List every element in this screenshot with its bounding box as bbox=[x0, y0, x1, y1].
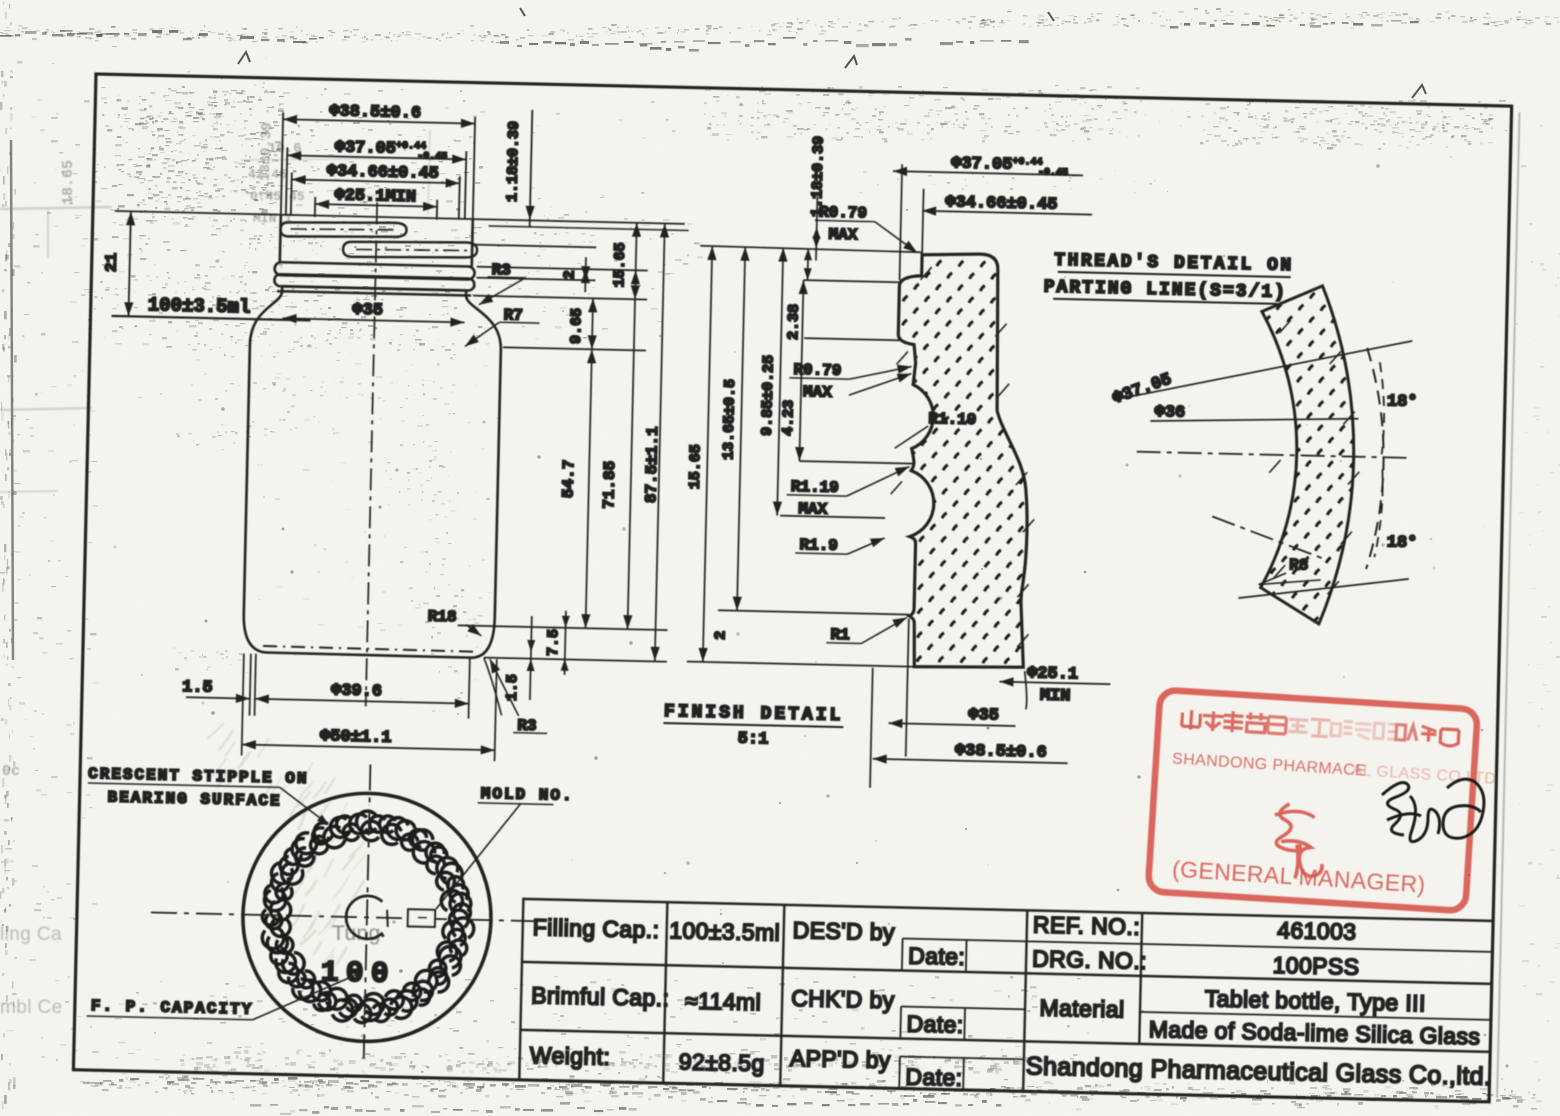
svg-text:9.85±0.25: 9.85±0.25 bbox=[759, 355, 778, 436]
svg-text:54.7: 54.7 bbox=[560, 459, 579, 498]
svg-text:7.5: 7.5 bbox=[545, 629, 563, 656]
svg-text:Date:: Date: bbox=[905, 1064, 963, 1091]
svg-text:100±3.5ml: 100±3.5ml bbox=[669, 917, 780, 946]
svg-text:F. P. CAPACITY: F. P. CAPACITY bbox=[91, 997, 254, 1019]
svg-text:2.38: 2.38 bbox=[785, 304, 803, 340]
svg-text:Φ35: Φ35 bbox=[352, 301, 383, 321]
svg-text:mbl Ce: mbl Ce bbox=[0, 997, 63, 1018]
svg-text:-0.45: -0.45 bbox=[417, 151, 447, 163]
svg-text:Φ35: Φ35 bbox=[968, 706, 999, 726]
svg-text:R18: R18 bbox=[428, 608, 457, 627]
svg-text:R0.79: R0.79 bbox=[819, 203, 867, 222]
svg-text:Φ50±1.1: Φ50±1.1 bbox=[320, 727, 392, 748]
svg-text:92±8.5g: 92±8.5g bbox=[679, 1048, 765, 1076]
svg-text:Date:: Date: bbox=[906, 1011, 964, 1038]
svg-text:R1.19: R1.19 bbox=[791, 478, 839, 497]
svg-text:ling Ca: ling Ca bbox=[0, 924, 62, 945]
svg-text:R1.19: R1.19 bbox=[928, 410, 976, 429]
svg-text:Weight:: Weight: bbox=[530, 1042, 611, 1070]
svg-text:MAX: MAX bbox=[803, 383, 833, 402]
svg-text:1.5: 1.5 bbox=[182, 678, 213, 698]
svg-text:Φ39.6: Φ39.6 bbox=[331, 681, 382, 701]
svg-text:Material: Material bbox=[1039, 995, 1125, 1023]
svg-text:100PSS: 100PSS bbox=[1272, 952, 1359, 980]
svg-text:71.85: 71.85 bbox=[600, 461, 619, 509]
svg-text:4.23: 4.23 bbox=[780, 400, 798, 436]
svg-text:FINISH DETAIL: FINISH DETAIL bbox=[664, 702, 844, 726]
svg-text:MOLD NO.: MOLD NO. bbox=[481, 785, 574, 805]
svg-text:Tung: Tung bbox=[332, 922, 381, 945]
svg-text:REF. NO.:: REF. NO.: bbox=[1033, 911, 1141, 939]
svg-text:1.5: 1.5 bbox=[504, 674, 522, 701]
svg-text:0c: 0c bbox=[2, 763, 20, 780]
svg-text:Φ34.66±0.45: Φ34.66±0.45 bbox=[327, 162, 440, 184]
svg-text:Φ38.5±0.6: Φ38.5±0.6 bbox=[329, 102, 421, 123]
svg-text:MIN: MIN bbox=[1040, 687, 1071, 707]
svg-text:13.65±0.5: 13.65±0.5 bbox=[720, 379, 739, 460]
svg-text:100: 100 bbox=[320, 956, 396, 992]
svg-text:R1.9: R1.9 bbox=[799, 536, 838, 555]
svg-text:MAX: MAX bbox=[798, 500, 828, 519]
svg-text:15.65: 15.65 bbox=[611, 242, 629, 287]
svg-text:R8: R8 bbox=[1289, 556, 1309, 574]
svg-text:Tablet bottle, Type III: Tablet bottle, Type III bbox=[1205, 985, 1427, 1016]
svg-text:1.18±0.39: 1.18±0.39 bbox=[504, 121, 523, 202]
svg-text:18°: 18° bbox=[1387, 392, 1418, 412]
svg-text:Filling Cap.:: Filling Cap.: bbox=[532, 914, 659, 943]
svg-text:15.65: 15.65 bbox=[687, 444, 705, 489]
svg-text:R1: R1 bbox=[830, 626, 850, 644]
svg-text:100±3.5ml: 100±3.5ml bbox=[148, 294, 251, 318]
svg-text:Φ25.1MIN: Φ25.1MIN bbox=[334, 186, 416, 207]
svg-text:MAX: MAX bbox=[828, 226, 858, 245]
svg-text:DES'D by: DES'D by bbox=[792, 917, 895, 945]
svg-text:DRG. NO.:: DRG. NO.: bbox=[1032, 945, 1147, 974]
svg-text:18°: 18° bbox=[1386, 533, 1417, 553]
svg-text:2: 2 bbox=[561, 270, 578, 279]
svg-text:Brimful Cap.:: Brimful Cap.: bbox=[531, 982, 670, 1011]
svg-text:2: 2 bbox=[712, 631, 729, 640]
svg-text:-0.45: -0.45 bbox=[1038, 167, 1068, 179]
svg-text:461003: 461003 bbox=[1277, 917, 1357, 945]
svg-text:APP'D by: APP'D by bbox=[790, 1045, 892, 1073]
svg-text:≈114ml: ≈114ml bbox=[685, 988, 762, 1016]
svg-text:Date:: Date: bbox=[908, 943, 966, 970]
svg-text:5:1: 5:1 bbox=[738, 730, 769, 750]
svg-text:Φ25.1: Φ25.1 bbox=[1027, 664, 1078, 684]
svg-text:CHK'D by: CHK'D by bbox=[791, 985, 895, 1013]
svg-text:21: 21 bbox=[103, 253, 121, 273]
svg-text:Φ38.5±0.6: Φ38.5±0.6 bbox=[955, 742, 1047, 763]
svg-text:R0.79: R0.79 bbox=[793, 361, 841, 380]
svg-text:9.65: 9.65 bbox=[568, 308, 586, 344]
svg-text:87.5±1.1: 87.5±1.1 bbox=[642, 426, 662, 503]
